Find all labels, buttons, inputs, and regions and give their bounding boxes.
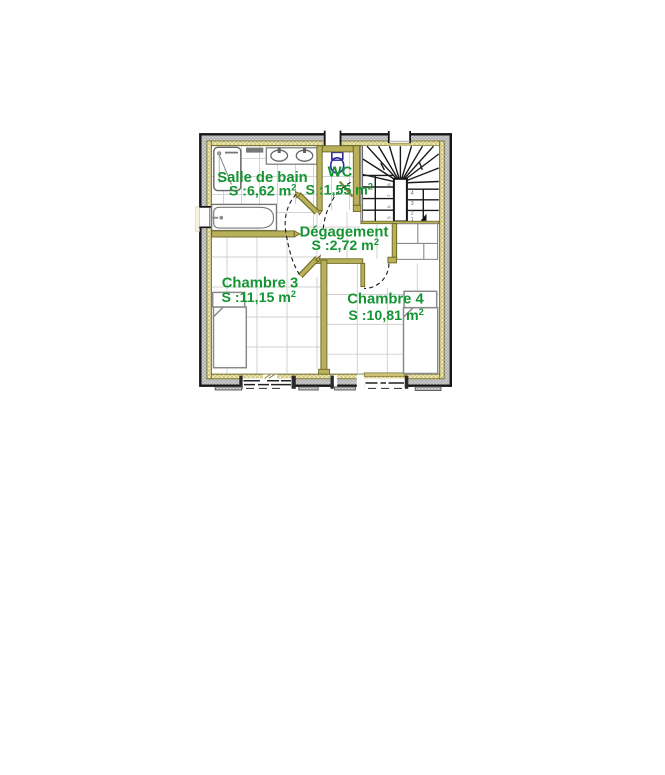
svg-text:5: 5 bbox=[387, 216, 393, 219]
svg-text:7: 7 bbox=[387, 194, 393, 197]
svg-text:4: 4 bbox=[411, 191, 414, 197]
svg-text:8: 8 bbox=[387, 183, 393, 186]
svg-text:S :11,15 m2: S :11,15 m2 bbox=[222, 289, 297, 306]
svg-text:S :10,81 m2: S :10,81 m2 bbox=[348, 307, 423, 324]
svg-text:Chambre 4: Chambre 4 bbox=[347, 291, 424, 307]
svg-text:WC: WC bbox=[328, 164, 353, 180]
svg-text:S :1,55 m2: S :1,55 m2 bbox=[306, 181, 373, 198]
svg-text:6: 6 bbox=[387, 205, 393, 208]
svg-text:S :2,72 m2: S :2,72 m2 bbox=[312, 237, 379, 254]
svg-text:3: 3 bbox=[411, 201, 414, 207]
svg-text:S :6,62 m2: S :6,62 m2 bbox=[229, 183, 296, 200]
svg-text:2: 2 bbox=[411, 210, 414, 216]
